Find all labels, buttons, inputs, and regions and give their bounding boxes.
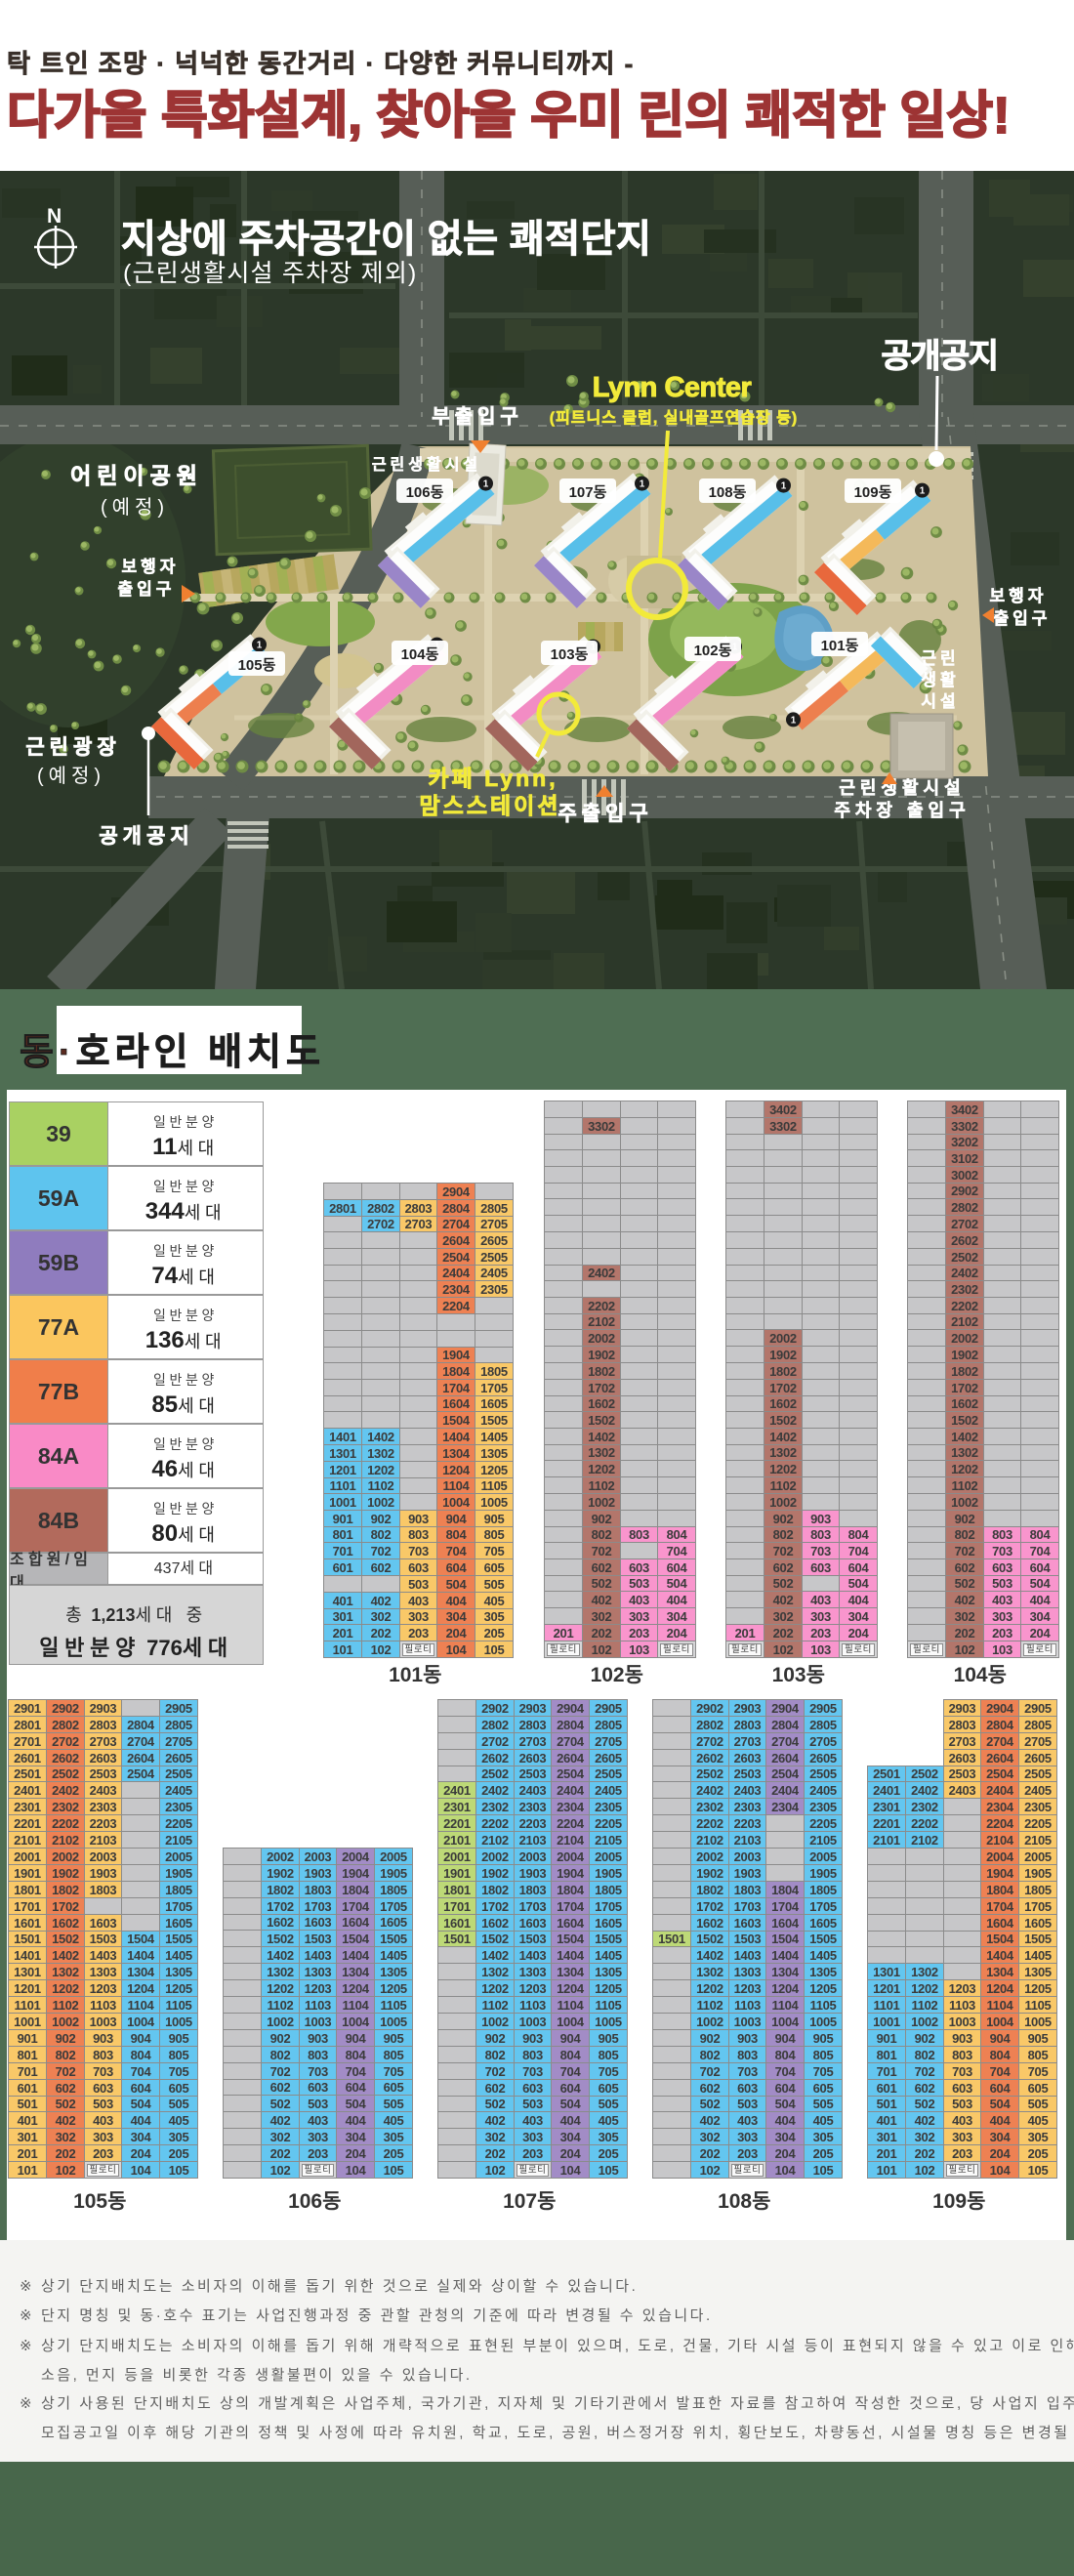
svg-text:생활: 생활 — [921, 670, 959, 689]
svg-text:부출입구: 부출입구 — [432, 405, 523, 428]
svg-text:카페 Lynn,: 카페 Lynn, — [428, 766, 558, 791]
svg-text:106동: 106동 — [406, 484, 444, 501]
svg-text:1: 1 — [257, 641, 263, 651]
svg-text:공개공지: 공개공지 — [881, 338, 997, 375]
svg-text:(예정): (예정) — [37, 765, 105, 787]
svg-text:근린광장: 근린광장 — [25, 736, 120, 759]
svg-text:N: N — [47, 205, 62, 228]
svg-text:109동: 109동 — [854, 484, 892, 501]
svg-text:출입구: 출입구 — [994, 609, 1052, 628]
svg-text:1: 1 — [791, 715, 797, 726]
svg-text:1: 1 — [920, 486, 926, 497]
svg-text:맘스스테이션: 맘스스테이션 — [420, 793, 561, 818]
svg-text:102동: 102동 — [694, 643, 732, 659]
svg-text:시설: 시설 — [921, 692, 959, 711]
svg-text:출입구: 출입구 — [118, 580, 176, 599]
svg-text:(근린생활시설 주차장 제외): (근린생활시설 주차장 제외) — [123, 260, 418, 287]
svg-text:보행자: 보행자 — [122, 558, 180, 576]
svg-text:주차장 출입구: 주차장 출입구 — [834, 800, 970, 820]
svg-text:근린생활시설: 근린생활시설 — [839, 778, 965, 798]
svg-text:근린생활시설: 근린생활시설 — [372, 455, 481, 474]
svg-text:Lynn Center: Lynn Center — [593, 372, 752, 403]
svg-text:공개공지: 공개공지 — [99, 825, 193, 848]
svg-text:(예정): (예정) — [101, 496, 169, 519]
svg-text:104동: 104동 — [401, 646, 439, 663]
svg-text:108동: 108동 — [709, 484, 747, 501]
svg-text:(피트니스 클럽, 실내골프연습장 등): (피트니스 클럽, 실내골프연습장 등) — [550, 409, 799, 427]
svg-text:주출입구: 주출입구 — [558, 803, 652, 825]
svg-text:1: 1 — [781, 481, 787, 492]
svg-text:1: 1 — [640, 479, 645, 490]
svg-text:1: 1 — [483, 479, 489, 490]
svg-text:101동: 101동 — [821, 638, 859, 654]
svg-text:107동: 107동 — [569, 484, 607, 501]
svg-text:103동: 103동 — [551, 646, 589, 663]
svg-text:105동: 105동 — [238, 657, 276, 674]
svg-text:지상에 주차공간이 없는 쾌적단지: 지상에 주차공간이 없는 쾌적단지 — [121, 219, 651, 261]
svg-text:어린이공원: 어린이공원 — [70, 463, 203, 488]
svg-text:보행자: 보행자 — [990, 587, 1048, 605]
svg-text:근린: 근린 — [921, 649, 959, 668]
